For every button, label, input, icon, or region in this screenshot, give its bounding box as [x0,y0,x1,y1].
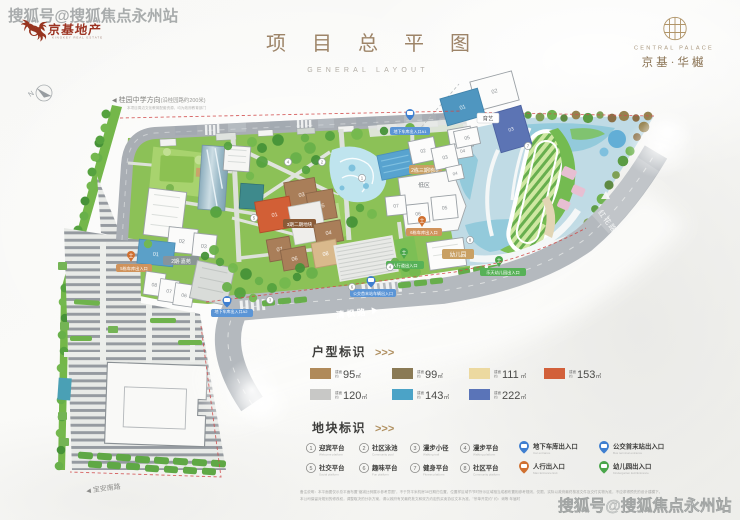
svg-text:01: 01 [152,252,159,259]
svg-text:项目总平图: 项目总平图 [266,32,496,55]
svg-text:6栋车库出入口: 6栋车库出入口 [410,229,437,236]
svg-text:地下车库出入口: 地下车库出入口 [533,442,578,451]
svg-text:京基·华樾: 京基·华樾 [642,55,707,69]
svg-text:05: 05 [442,205,448,212]
svg-text:5栋车库出入口: 5栋车库出入口 [120,265,147,272]
svg-text:Welcome platform: Welcome platform [319,452,344,456]
svg-text:3期二期地块: 3期二期地块 [287,221,313,228]
svg-text:06: 06 [181,293,188,300]
svg-text:120: 120 [343,390,361,402]
svg-text:Walking trail: Walking trail [423,452,440,456]
svg-text:4: 4 [464,446,467,452]
svg-text:漫步平台: 漫步平台 [473,443,499,452]
svg-text:99: 99 [425,369,437,381]
svg-text:95: 95 [343,369,355,381]
svg-text:㎡: ㎡ [521,372,527,380]
svg-text:建面: 建面 [417,369,425,374]
svg-text:土: 土 [419,218,424,225]
svg-text:8: 8 [464,466,467,472]
svg-text:土: 土 [401,250,406,257]
svg-text:>>>: >>> [375,347,394,359]
svg-text:土: 土 [496,258,501,265]
svg-text:搜狐号@搜狐焦点永州站: 搜狐号@搜狐焦点永州站 [558,496,732,515]
svg-text:143: 143 [425,390,443,402]
svg-text:约: 约 [417,395,421,400]
svg-text:健身平台: 健身平台 [423,463,449,472]
svg-text:Fitness platform: Fitness platform [423,472,445,476]
svg-text:幼儿园出入口: 幼儿园出入口 [613,462,651,471]
svg-text:育艺: 育艺 [483,115,494,123]
svg-text:公交首末站车辆出入口: 公交首末站车辆出入口 [353,290,393,296]
svg-text:07: 07 [393,203,399,210]
svg-text:KINGKEY REAL ESTATE: KINGKEY REAL ESTATE [52,36,103,40]
svg-text:03: 03 [200,244,207,251]
svg-text:建面: 建面 [494,390,502,395]
svg-text:Community pool: Community pool [372,452,394,456]
svg-text:幼儿园: 幼儿园 [450,251,467,259]
svg-text:约: 约 [494,374,498,379]
svg-text:社交平台: 社交平台 [318,463,345,472]
svg-text:GENERAL LAYOUT: GENERAL LAYOUT [307,67,428,74]
svg-text:06: 06 [291,256,298,263]
svg-text:01: 01 [271,212,278,219]
svg-text:建面: 建面 [417,390,425,395]
svg-text:3: 3 [414,446,417,452]
svg-text:Community platform: Community platform [473,472,500,476]
svg-text:建面: 建面 [494,369,502,374]
svg-text:社区泳池: 社区泳池 [371,443,398,452]
svg-text:地下车库出入口A2: 地下车库出入口A2 [215,308,249,314]
svg-text:备注说明：本平面图仅示总平面布置"缩减比例展示参考意图"，不: 备注说明：本平面图仅示总平面布置"缩减比例展示参考意图"，不于贷平米机房38日期… [300,489,662,494]
svg-text:02: 02 [178,239,185,246]
svg-text:㎡: ㎡ [596,372,602,380]
svg-text:Social platform: Social platform [319,472,339,476]
svg-text:08: 08 [322,251,329,258]
svg-text:5: 5 [310,466,313,472]
svg-text:约: 约 [335,395,339,400]
svg-text:07: 07 [166,289,173,296]
svg-text:约: 约 [494,395,498,400]
svg-text:地下车库出入口A1: 地下车库出入口A1 [394,128,428,134]
svg-text:建面: 建面 [335,390,343,395]
svg-text:111: 111 [502,369,519,381]
svg-text:04: 04 [325,230,332,237]
svg-text:人行道出入口: 人行道出入口 [392,262,417,269]
svg-text:乐天幼儿园出入口: 乐天幼儿园出入口 [486,269,520,276]
svg-text:建面: 建面 [569,369,577,374]
svg-text:2期·嘉苑: 2期·嘉苑 [171,258,190,265]
svg-text:漫步小径: 漫步小径 [423,443,449,452]
svg-text:土: 土 [128,253,133,260]
svg-text:222: 222 [502,390,520,402]
svg-text:08: 08 [151,282,158,289]
svg-text:Fun platform: Fun platform [372,472,389,476]
svg-text:户型标识: 户型标识 [312,344,366,359]
svg-text:Car entrance: Car entrance [533,451,551,455]
svg-text:约: 约 [569,374,573,379]
svg-text:Kindergarten Exit/Entrance: Kindergarten Exit/Entrance [613,471,649,475]
svg-text:本公司保留对规划的修改权，调整取决的分析方案，请以政府有关最: 本公司保留对规划的修改权，调整取决的分析方案，请以政府有关最终批文和双方约定的买… [300,496,521,501]
svg-text:本项目周边文化教育配套资源，均为政府教育部门: 本项目周边文化教育配套资源，均为政府教育部门 [127,105,206,110]
svg-text:1: 1 [310,446,313,452]
svg-text:公交首末站出入口: 公交首末站出入口 [613,442,664,451]
svg-text:Bus terminal entrance: Bus terminal entrance [613,451,643,455]
svg-text:㎡: ㎡ [437,372,443,380]
svg-text:约: 约 [335,374,339,379]
svg-text:迎宾平台: 迎宾平台 [319,443,345,452]
svg-text:低区: 低区 [418,181,430,189]
svg-text:地块标识: 地块标识 [312,420,366,435]
svg-text:社区平台: 社区平台 [472,463,499,472]
svg-text:㎡: ㎡ [362,393,368,401]
svg-text:人行出入口: 人行出入口 [533,462,565,471]
svg-text:2: 2 [363,446,366,452]
svg-text:>>>: >>> [375,423,394,435]
svg-text:7: 7 [414,466,417,472]
svg-text:6: 6 [363,466,366,472]
svg-text:趣味平台: 趣味平台 [371,463,398,472]
svg-text:㎡: ㎡ [444,393,450,401]
svg-text:CENTRAL PALACE: CENTRAL PALACE [634,46,714,52]
svg-text:153: 153 [577,369,595,381]
svg-text:Man Entrance Exit: Man Entrance Exit [533,471,558,475]
svg-text:㎡: ㎡ [521,393,527,401]
svg-text:Walking platform: Walking platform [473,452,496,456]
svg-text:㎡: ㎡ [355,372,361,380]
svg-text:建面: 建面 [335,369,343,374]
svg-text:03: 03 [298,192,305,199]
svg-text:约: 约 [417,374,421,379]
